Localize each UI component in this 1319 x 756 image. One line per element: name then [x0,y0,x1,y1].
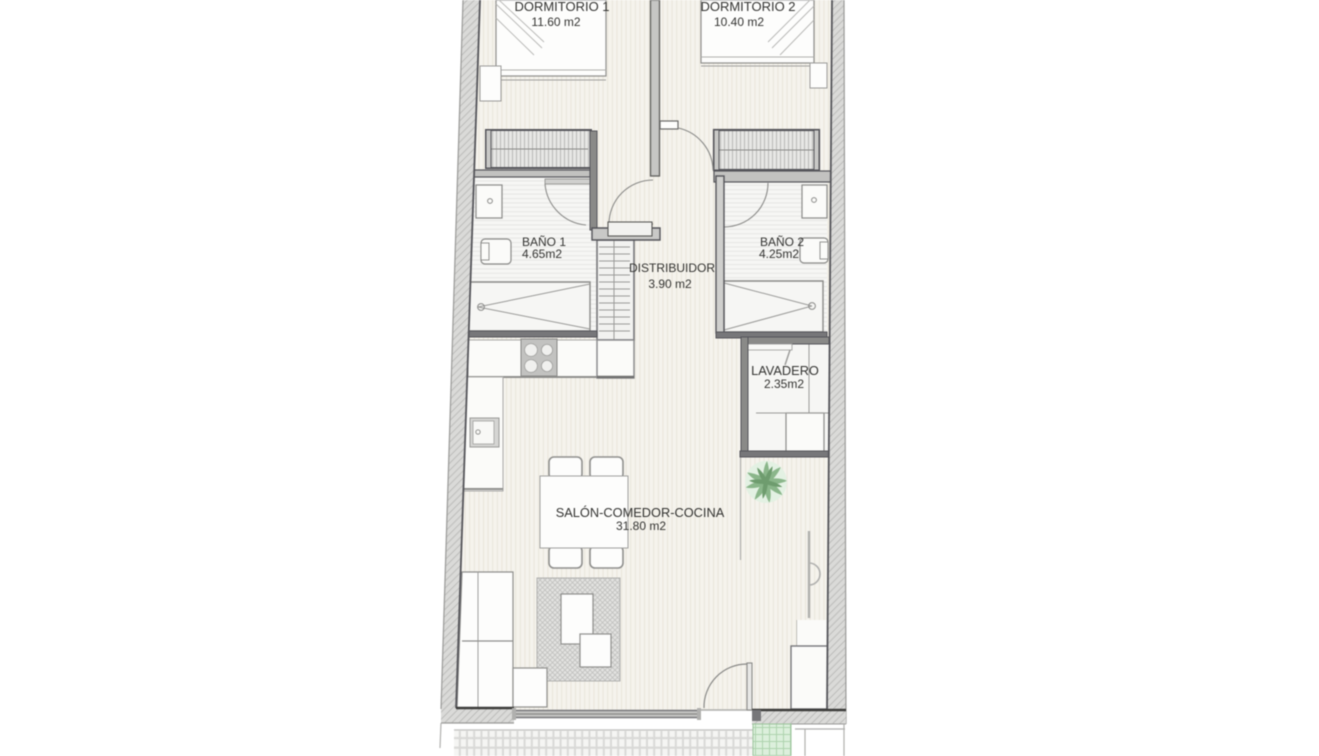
svg-text:2.35m2: 2.35m2 [764,377,804,391]
svg-text:SALÓN-COMEDOR-COCINA: SALÓN-COMEDOR-COCINA [556,505,725,520]
svg-text:11.60 m2: 11.60 m2 [531,15,580,29]
svg-text:DISTRIBUIDOR: DISTRIBUIDOR [629,261,715,275]
svg-text:3.90 m2: 3.90 m2 [648,277,692,291]
svg-text:4.65m2: 4.65m2 [522,247,562,261]
svg-text:4.25m2: 4.25m2 [759,247,799,261]
svg-text:DORMITORIO 2: DORMITORIO 2 [700,0,795,14]
svg-text:LAVADERO: LAVADERO [751,363,819,378]
svg-text:31.80 m2: 31.80 m2 [616,519,666,533]
svg-text:10.40 m2: 10.40 m2 [714,15,764,29]
svg-text:DORMITORIO 1: DORMITORIO 1 [514,0,609,14]
